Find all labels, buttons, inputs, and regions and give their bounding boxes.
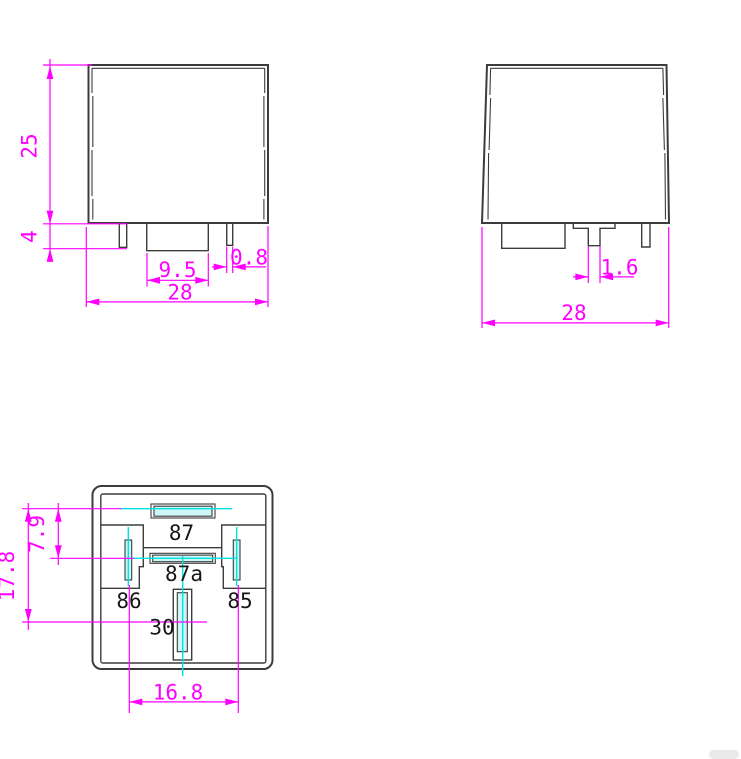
pin-label-87: 87	[169, 521, 194, 545]
side-view: 1.6 28	[482, 65, 669, 328]
arrow-1-6-left	[575, 274, 588, 281]
dim-text-overall-span: 17.8	[0, 551, 19, 602]
arrow-28-side-right	[656, 320, 669, 327]
front-body-outline	[89, 65, 269, 223]
bottom-recess-left	[101, 525, 144, 588]
arrow-16-8-left	[129, 699, 142, 706]
side-body-outline	[482, 65, 669, 223]
pin-label-85: 85	[227, 589, 252, 613]
relay-technical-drawing: 25 4 9.5 0.8 28 1.6 28	[0, 0, 741, 759]
dim-text-pin-width: 1.6	[601, 256, 639, 280]
pin-label-86: 86	[116, 589, 141, 613]
dim-text-pin-spacing: 16.8	[153, 681, 204, 705]
arrow-7-9-bottom	[55, 545, 62, 558]
front-body-right-seam	[264, 68, 265, 219]
pin-label-30: 30	[149, 616, 174, 640]
front-left-pin	[119, 223, 126, 247]
front-view: 25 4 9.5 0.8 28	[18, 59, 269, 307]
dim-text-front-body-width: 28	[167, 281, 192, 305]
arrow-9-5-right	[195, 277, 208, 284]
front-dimension-lines	[43, 59, 268, 307]
arrow-28-side-left	[482, 320, 495, 327]
arrow-0-8-left	[214, 264, 227, 271]
slot-87	[154, 506, 212, 516]
dim-text-pin-thickness: 0.8	[230, 246, 268, 270]
dim-extensions-25-4	[43, 65, 127, 249]
side-left-block-pin	[502, 223, 565, 248]
dim-text-pin-protrusion: 4	[18, 230, 42, 243]
dim-text-side-body-width: 28	[561, 301, 586, 325]
side-center-pin	[573, 223, 615, 246]
arrow-25-top	[47, 66, 54, 79]
arrow-4-bottom	[47, 249, 54, 262]
dim-text-center-tab-width: 9.5	[159, 258, 197, 282]
side-view-body	[482, 65, 669, 248]
arrow-25-bottom	[47, 211, 54, 224]
pin-label-87a: 87a	[165, 562, 203, 586]
drawing-canvas: 25 4 9.5 0.8 28 1.6 28	[0, 0, 741, 759]
side-body-right-seam	[663, 68, 666, 219]
side-dimension-texts: 1.6 28	[561, 256, 638, 326]
front-dimension-texts: 25 4 9.5 0.8 28	[18, 133, 268, 304]
arrow-28-front-right	[255, 299, 268, 306]
front-body-left-seam	[92, 68, 93, 219]
bottom-view: 17.8 7.9 16.8 87 87a 86 85 30	[0, 486, 273, 713]
arrow-28-front-left	[86, 299, 99, 306]
bottom-recess-right	[222, 525, 266, 588]
side-right-pin	[642, 223, 650, 247]
arrow-17-8-bottom	[25, 609, 32, 622]
front-center-tab	[147, 223, 209, 251]
dim-text-body-height: 25	[18, 133, 42, 158]
side-body-left-seam	[488, 68, 491, 219]
front-right-pin	[227, 223, 233, 245]
arrow-7-9-top	[55, 509, 62, 522]
arrow-16-8-right	[225, 699, 238, 706]
dim-text-row-spacing: 7.9	[25, 515, 49, 553]
scrollbar-thumb[interactable]	[709, 750, 739, 759]
front-view-body	[89, 65, 269, 251]
